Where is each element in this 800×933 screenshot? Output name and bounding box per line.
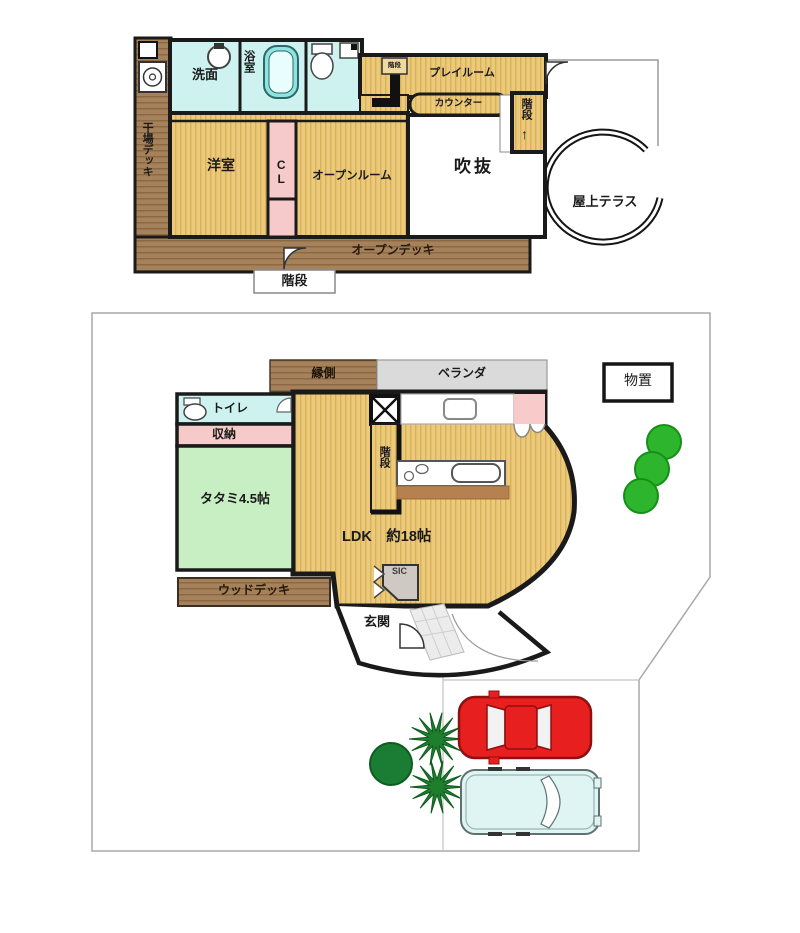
sink-icon: [208, 46, 230, 68]
lower-stairs: [371, 424, 399, 512]
van-icon: [461, 767, 601, 836]
veranda-label: ベランダ: [377, 367, 547, 380]
red-car-icon: [459, 691, 591, 764]
counter-edge: [397, 486, 509, 499]
tatami-label: タタミ4.5帖: [179, 492, 291, 506]
ldk-label: LDK 約18帖: [342, 530, 431, 546]
western-room-label: 洋室: [176, 158, 266, 173]
storage-label: 収納: [212, 428, 236, 441]
stairs-box-label: 階段: [254, 274, 335, 288]
stove-burner-icon: [405, 472, 414, 481]
closet-label: CL: [274, 158, 287, 186]
floor-plan-page: 干場デッキ 洗面 浴室 洋室 CL オープンルーム プレイルーム 階段 カウンタ…: [0, 0, 800, 933]
bathroom-label: 浴室: [242, 50, 255, 73]
roof-terrace-label: 屋上テラス: [550, 195, 660, 209]
sic-label: SIC: [392, 567, 407, 577]
open-room-label: オープンルーム: [296, 170, 408, 183]
shed-label: 物置: [604, 373, 672, 388]
drying-deck-label: 干場デッキ: [141, 122, 153, 177]
tatami-room: [177, 446, 293, 570]
upper-stairs-label: 階段: [520, 98, 532, 120]
open-deck-label: オープンデッキ: [318, 244, 468, 257]
toilet-label: トイレ: [212, 402, 248, 415]
playroom-label: プレイルーム: [406, 67, 518, 79]
entrance-label: 玄関: [364, 615, 390, 629]
mini-stairs-label: 階段: [382, 62, 407, 69]
door-arc-icon: [546, 62, 568, 84]
stairs-up-arrow-icon: ↑: [521, 127, 528, 142]
void-label: 吹抜: [418, 158, 530, 177]
engawa-label: 縁側: [270, 367, 377, 380]
wood-deck-label: ウッドデッキ: [180, 584, 328, 597]
lower-stairs-label: 階段: [378, 446, 390, 468]
island-sink-icon: [452, 464, 500, 482]
kitchen-pink-corner: [514, 394, 545, 424]
kitchen-sink-icon: [444, 399, 476, 419]
counter-label: カウンター: [412, 99, 505, 109]
washroom-label: 洗面: [174, 68, 236, 82]
floor-plan-drawing: [0, 0, 800, 933]
round-bush-icon: [370, 743, 412, 785]
